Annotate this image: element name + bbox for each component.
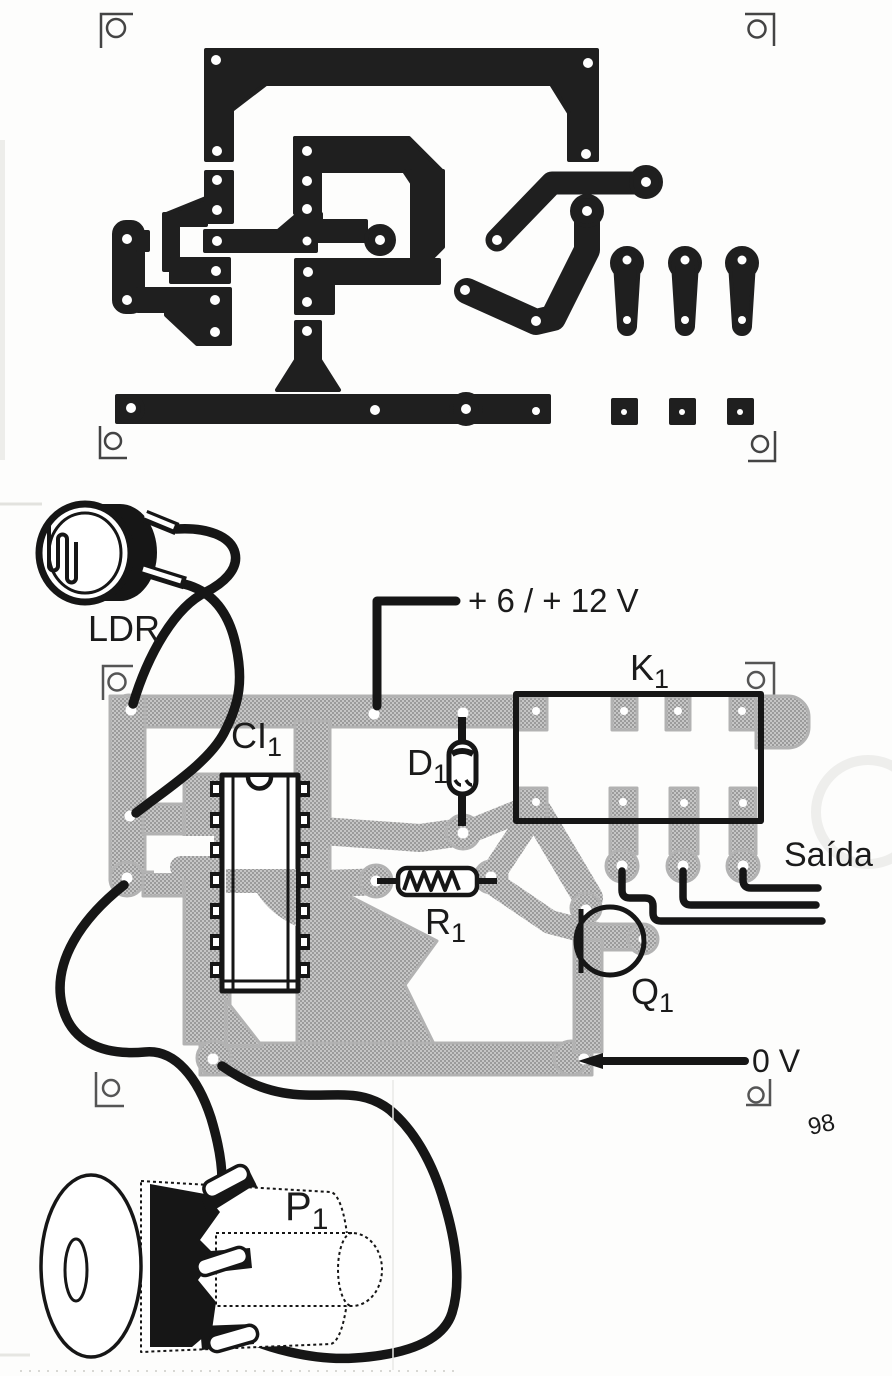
svg-text:98: 98 <box>806 1109 838 1141</box>
svg-text:0 V: 0 V <box>752 1043 801 1079</box>
svg-text:Saída: Saída <box>784 836 873 874</box>
svg-text:LDR: LDR <box>88 608 160 649</box>
svg-text:+ 6 / + 12 V: + 6 / + 12 V <box>468 582 639 619</box>
